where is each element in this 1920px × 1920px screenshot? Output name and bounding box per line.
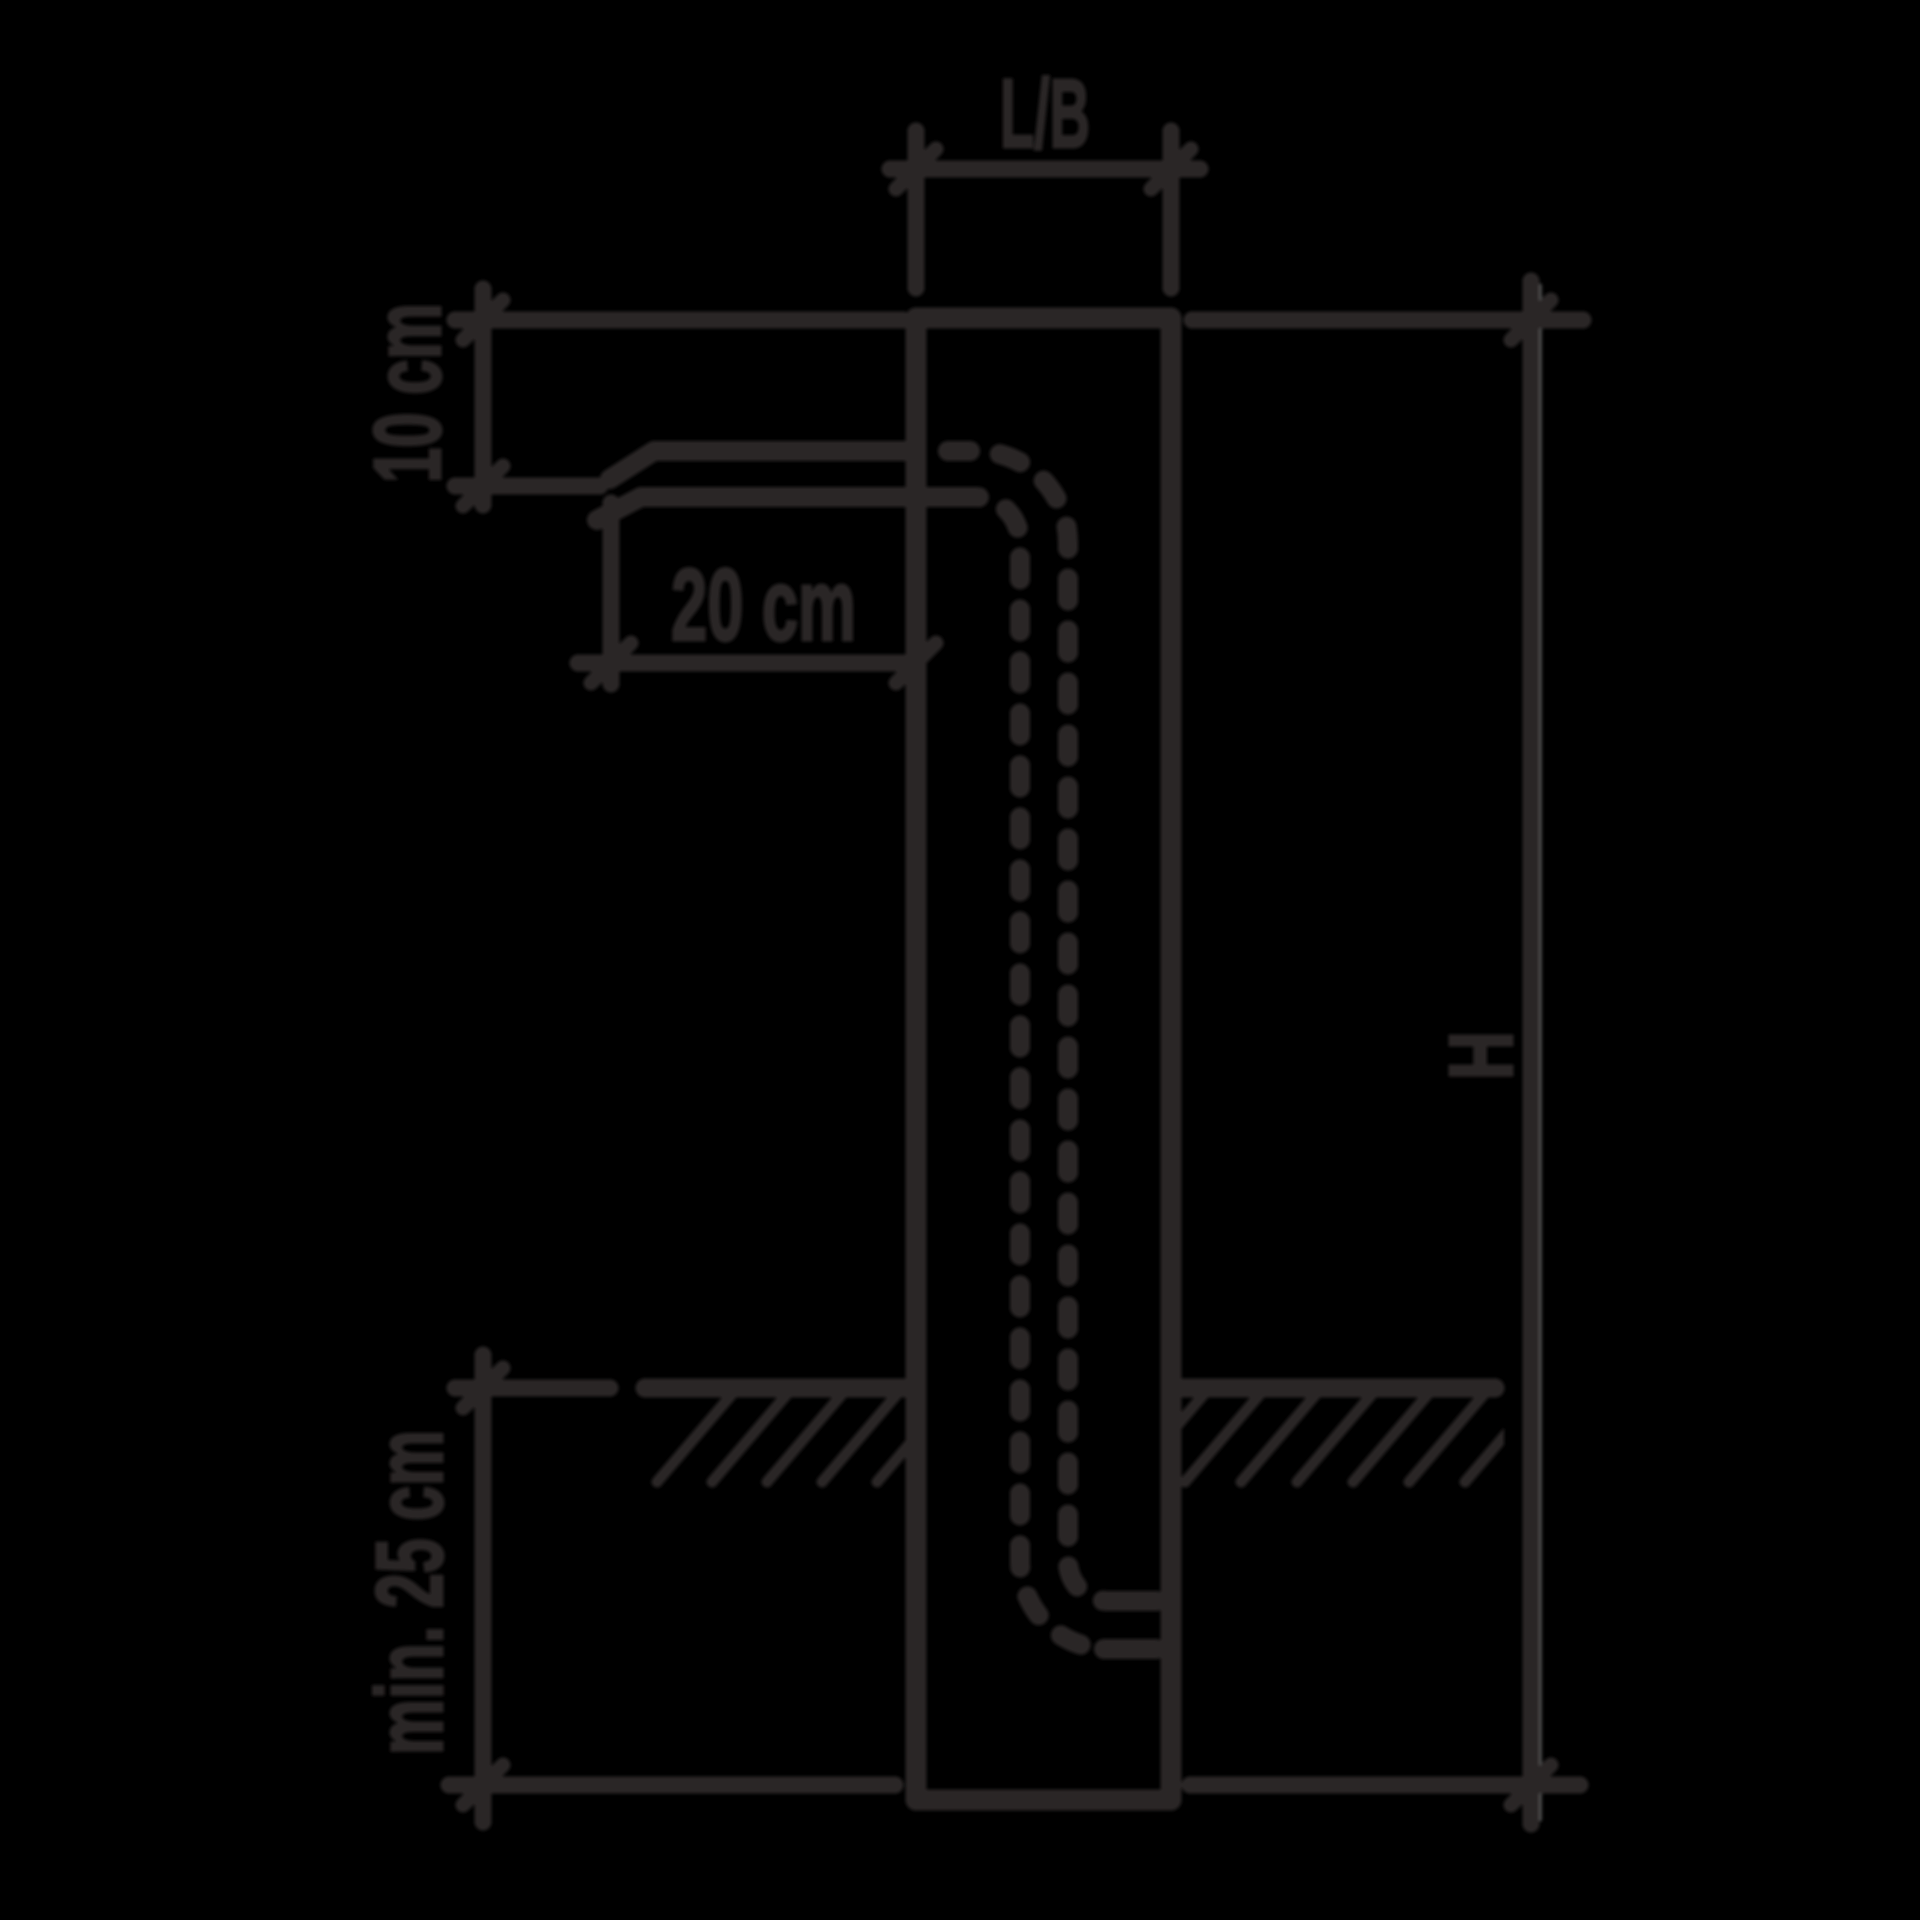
svg-text:10 cm: 10 cm [355,303,461,483]
svg-text:min. 25 cm: min. 25 cm [357,1430,463,1755]
svg-text:L/B: L/B [1000,59,1090,168]
svg-text:H: H [1432,1031,1532,1080]
svg-text:20 cm: 20 cm [671,548,856,662]
